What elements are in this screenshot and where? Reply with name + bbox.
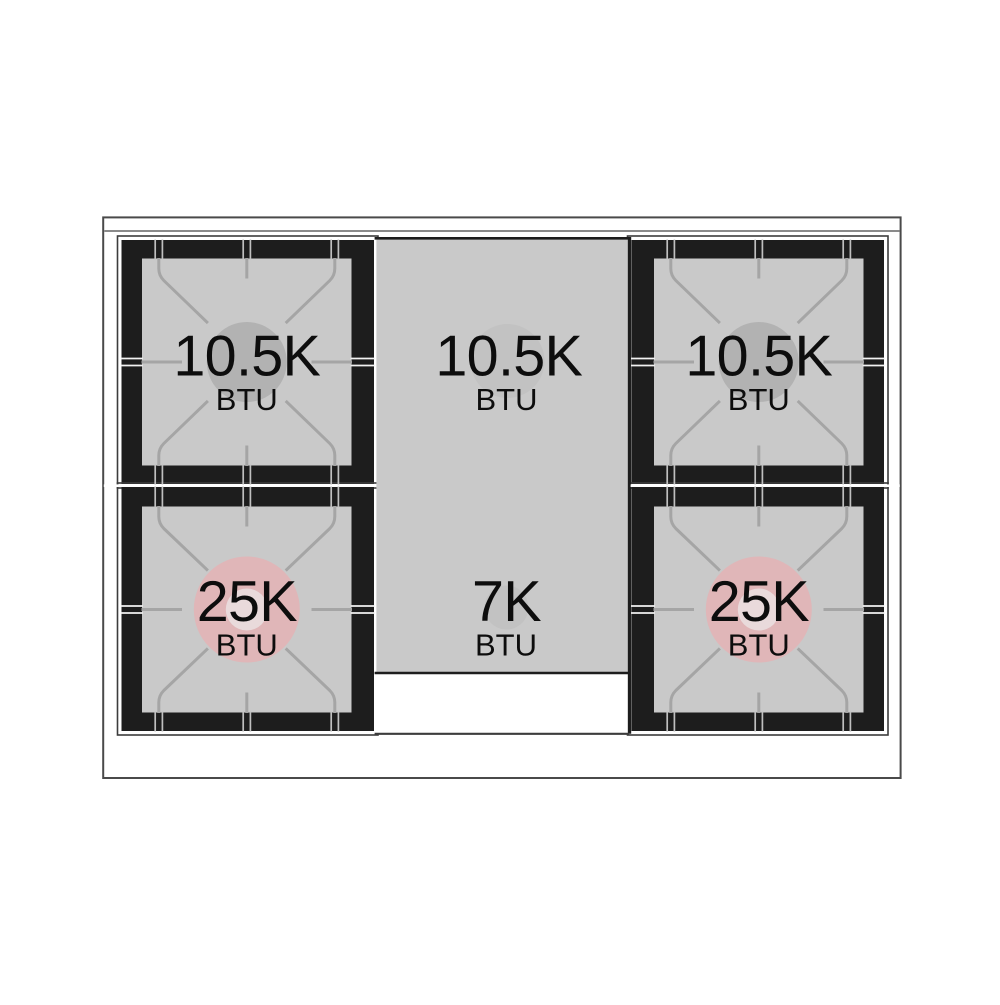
svg-text:BTU: BTU (476, 382, 538, 417)
svg-text:25K: 25K (197, 570, 298, 634)
svg-text:BTU: BTU (216, 628, 278, 663)
svg-text:25K: 25K (709, 570, 810, 634)
svg-text:BTU: BTU (475, 628, 537, 663)
svg-text:10.5K: 10.5K (435, 325, 582, 389)
svg-text:BTU: BTU (728, 628, 790, 663)
svg-text:BTU: BTU (728, 382, 790, 417)
svg-text:10.5K: 10.5K (173, 325, 320, 389)
svg-text:7K: 7K (472, 570, 541, 634)
svg-text:BTU: BTU (216, 382, 278, 417)
svg-text:10.5K: 10.5K (685, 325, 832, 389)
